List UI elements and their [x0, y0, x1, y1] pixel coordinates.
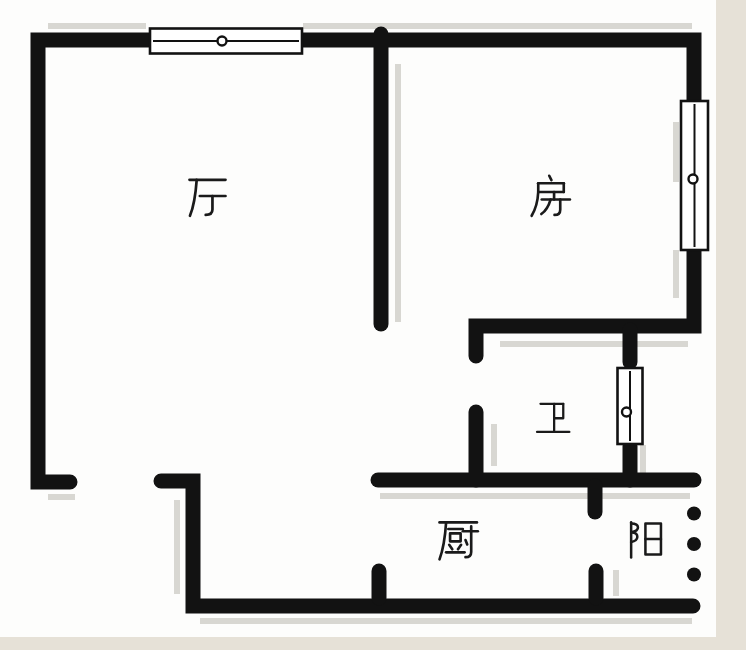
room-label-balcony: 阳: [624, 518, 666, 560]
room-label-living: 厅: [185, 172, 230, 220]
balcony-railing-dot: [687, 568, 701, 582]
balcony-railing-dot: [687, 507, 701, 521]
room-label-bedroom: 房: [529, 172, 573, 220]
walls: [38, 34, 694, 606]
balcony-railing-dots: [687, 507, 701, 582]
glyph-kitchen: [436, 517, 480, 563]
balcony-railing-dot: [687, 537, 701, 551]
window-icon: [150, 29, 302, 54]
glyph-balcony: [624, 518, 666, 560]
window-icon: [618, 368, 643, 444]
edge-strip-bottom: [0, 637, 746, 650]
glyph-bedroom: [529, 172, 573, 220]
floor-plan: 厅 房 卫 厨: [0, 0, 746, 650]
window-icon: [681, 101, 708, 250]
wall-top-right-and-right-upper: [303, 40, 694, 101]
living-window-pivot: [218, 37, 227, 46]
bathroom-window-pivot: [622, 408, 631, 417]
wall-left-and-top-left: [38, 40, 149, 482]
room-label-kitchen: 厨: [436, 517, 480, 563]
bedroom-window-pivot: [689, 175, 698, 184]
wall-right-lower-and-bedroom-bottom: [476, 251, 694, 356]
room-label-bathroom: 卫: [534, 398, 572, 437]
glyph-bathroom: [534, 398, 572, 437]
glyph-living: [185, 172, 230, 220]
edge-strip-right: [716, 0, 746, 650]
